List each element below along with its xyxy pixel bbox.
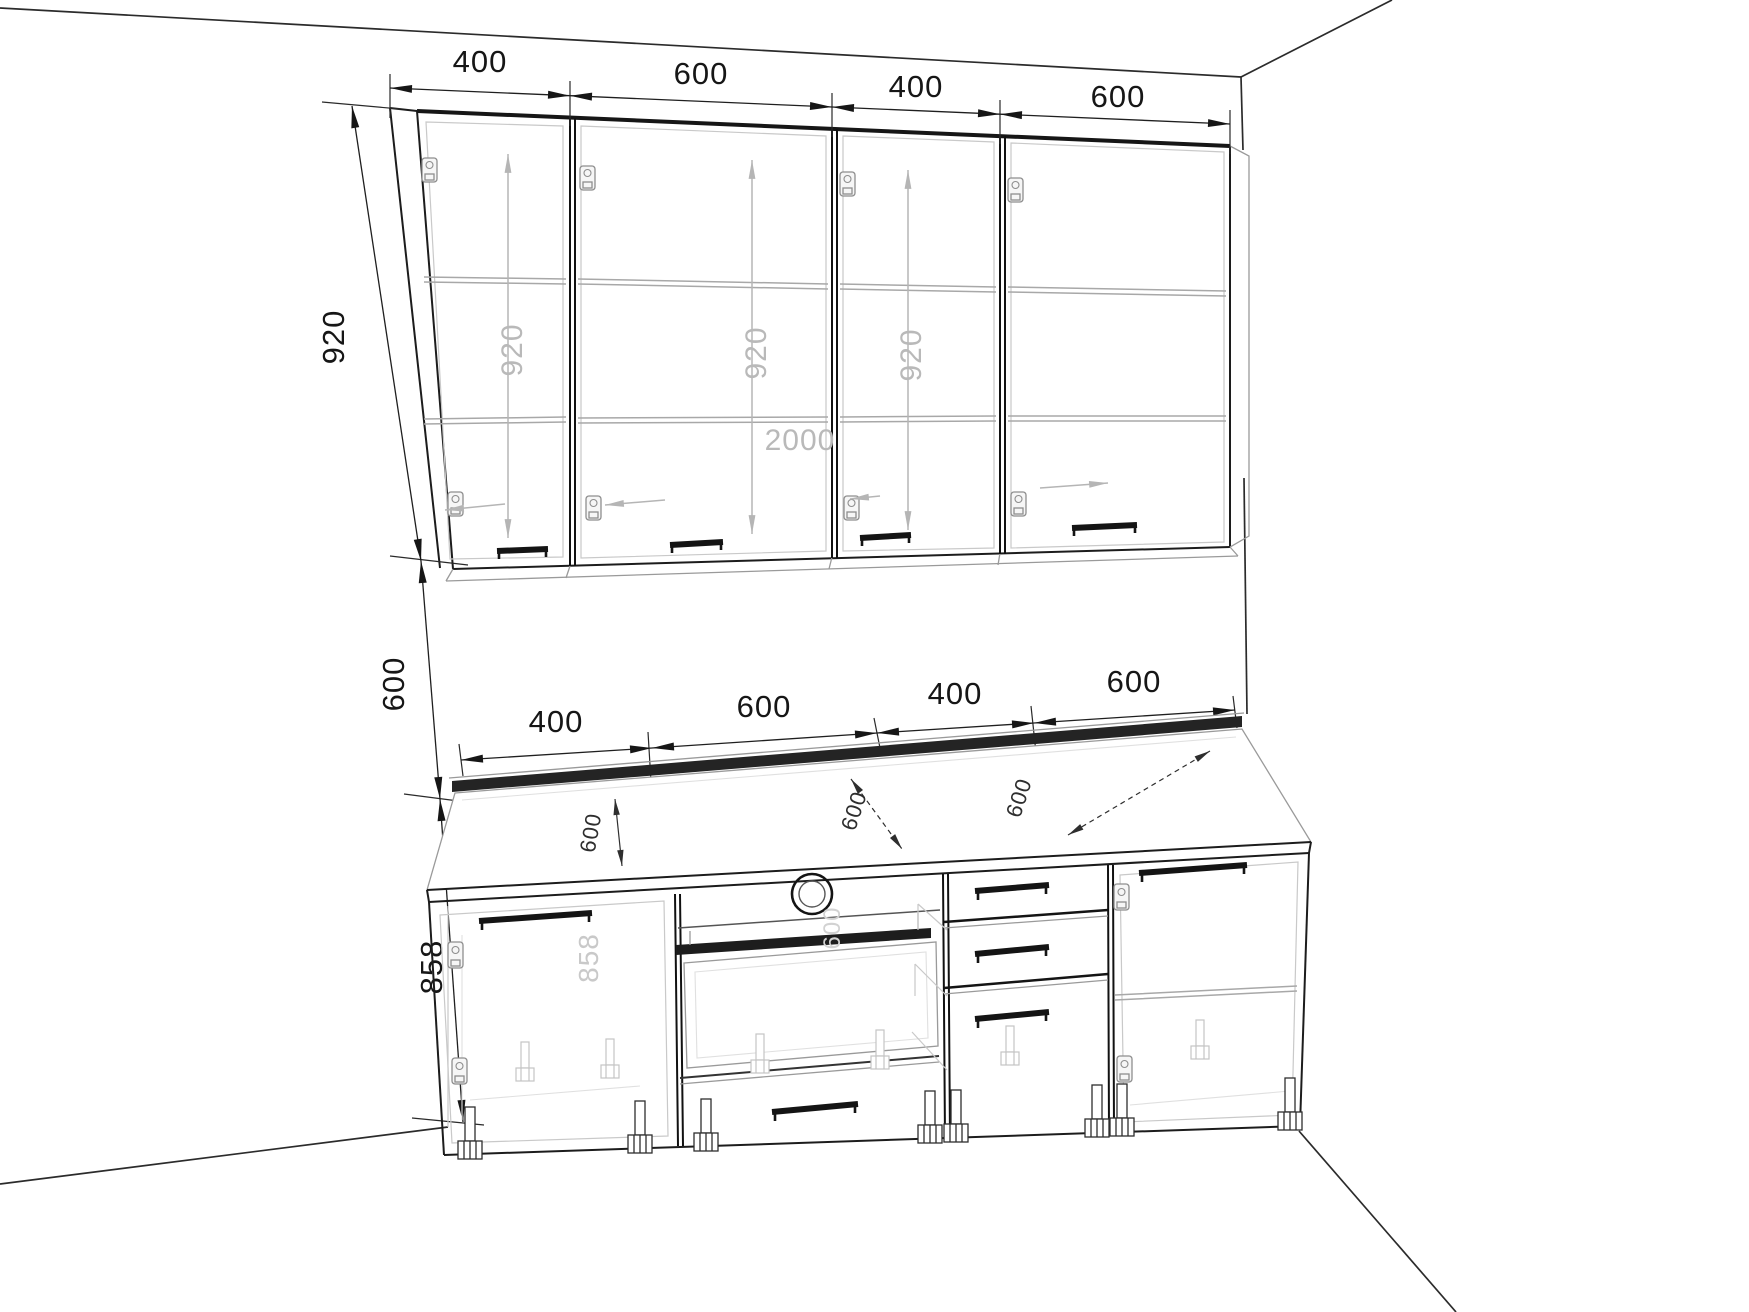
ghost-feet [516, 1020, 1209, 1081]
hinge-icon [1011, 492, 1026, 516]
wall-cab2-door-frame [581, 126, 826, 558]
hinge-icon [448, 492, 463, 516]
wall-shelves [424, 277, 1226, 424]
base-row-right-edge [1300, 853, 1309, 1126]
hinge-icon [448, 942, 463, 968]
top-dimensions: 400 600 400 600 [390, 44, 1230, 154]
adjustable-foot [918, 1091, 942, 1143]
ghost-base-height-label: 858 [573, 933, 604, 983]
door-swing-arrow [605, 500, 665, 505]
drawer-sep-2 [944, 974, 1108, 988]
oven-door-frame [684, 942, 938, 1068]
left-dim-ticks [322, 102, 484, 1125]
floor-right-line [1299, 1131, 1456, 1312]
base-cab1-interior-lines [462, 935, 640, 1120]
oven-door-inner [695, 952, 928, 1058]
cad-drawing-page: 920 920 920 2000 400 600 400 600 920 600… [0, 0, 1749, 1312]
left-dim-wall-height: 920 [316, 310, 351, 365]
top-dim-label-4: 600 [1091, 79, 1146, 114]
countertop-assembly: 600 600 600 [427, 713, 1311, 902]
wall-separator-3 [1000, 136, 1005, 554]
drawer-handle [772, 1104, 858, 1121]
base-cabinet-4 [1114, 862, 1298, 1122]
hinge-icon [1008, 178, 1023, 202]
ghost-wall-height-label: 920 [740, 326, 773, 379]
kitchen-elevation-drawing: 920 920 920 2000 400 600 400 600 920 600… [0, 0, 1749, 1312]
wall-corner-upper [1241, 77, 1243, 150]
adjustable-foot [1085, 1085, 1109, 1137]
drawer-sep-1b [944, 916, 1108, 928]
ghost-total-width-label: 2000 [765, 424, 836, 457]
wall-ghost-dimensions: 920 920 920 2000 [445, 154, 1108, 538]
base-separator-1 [675, 894, 683, 1146]
ghost-wall-height-label: 920 [496, 323, 529, 376]
wall-door-handles [497, 525, 1137, 559]
hinge-icon [580, 166, 595, 190]
base-dim-label-4: 600 [1107, 664, 1162, 699]
wall-separator-1 [570, 118, 575, 566]
hinge-icon [586, 496, 601, 520]
top-dim-label-3: 400 [889, 69, 944, 104]
floor-left-line [0, 1127, 448, 1184]
adjustable-foot [944, 1090, 968, 1142]
wall-cabinet-row: 920 920 920 2000 [390, 108, 1249, 581]
left-dim-gap-height: 600 [376, 657, 411, 712]
wall-row-top-edge [417, 111, 1230, 146]
top-dim-label-2: 600 [674, 56, 729, 91]
base-separator-3 [1108, 865, 1114, 1133]
base-separator-2 [943, 874, 950, 1138]
ghost-base-depth-label: 600 [819, 906, 846, 949]
hinge-icon [452, 1058, 467, 1084]
room-corner-lines [0, 0, 1456, 1312]
door-handle [1072, 525, 1137, 536]
oven-handle-bar [676, 928, 931, 955]
drawer-sep-1 [944, 910, 1108, 922]
base-dim-label-2: 600 [737, 689, 792, 724]
oven-cabinet: 600 [676, 874, 940, 1121]
hinge-icon [1114, 884, 1129, 910]
wall-corner-mid [1244, 478, 1247, 714]
wall-cab1-door-frame [426, 122, 563, 559]
ceiling-left-line [0, 8, 1241, 77]
adjustable-foot [628, 1101, 652, 1153]
ghost-wall-height-label: 920 [895, 328, 928, 381]
ceiling-right-line [1241, 0, 1392, 77]
door-handle [670, 542, 723, 553]
wall-separator-2 [832, 129, 837, 558]
drawer-handle [975, 885, 1049, 900]
base-row-bottom-edge [444, 1126, 1300, 1155]
wall-row-right-side-panel [1230, 146, 1249, 547]
adjustable-foot [694, 1099, 718, 1151]
base-dim-label-3: 400 [928, 676, 983, 711]
hinge-icon [1117, 1056, 1132, 1082]
base-cab4-shelf [1115, 986, 1297, 1000]
door-handle [479, 913, 592, 930]
base-cab4-interior-line [1130, 1091, 1290, 1105]
door-swing-arrow [1040, 483, 1108, 488]
door-handle [860, 535, 911, 546]
top-dim-label-1: 400 [453, 44, 508, 79]
hinge-icon [840, 172, 855, 196]
door-handle [1139, 865, 1247, 882]
base-dim-label-1: 400 [529, 704, 584, 739]
oven-drawer-separator [680, 1056, 939, 1078]
wall-row-underside-edge [446, 556, 1238, 581]
left-dimensions: 920 600 858 [316, 102, 484, 1125]
hinge-icon [422, 158, 437, 182]
wall-row-underside-ribs [446, 547, 1238, 581]
base-cabinet-row: 858 600 [429, 853, 1309, 1159]
drawer-handle [975, 947, 1049, 963]
oven-opening-inner-circle [799, 881, 825, 907]
adjustable-foot [1278, 1078, 1302, 1130]
